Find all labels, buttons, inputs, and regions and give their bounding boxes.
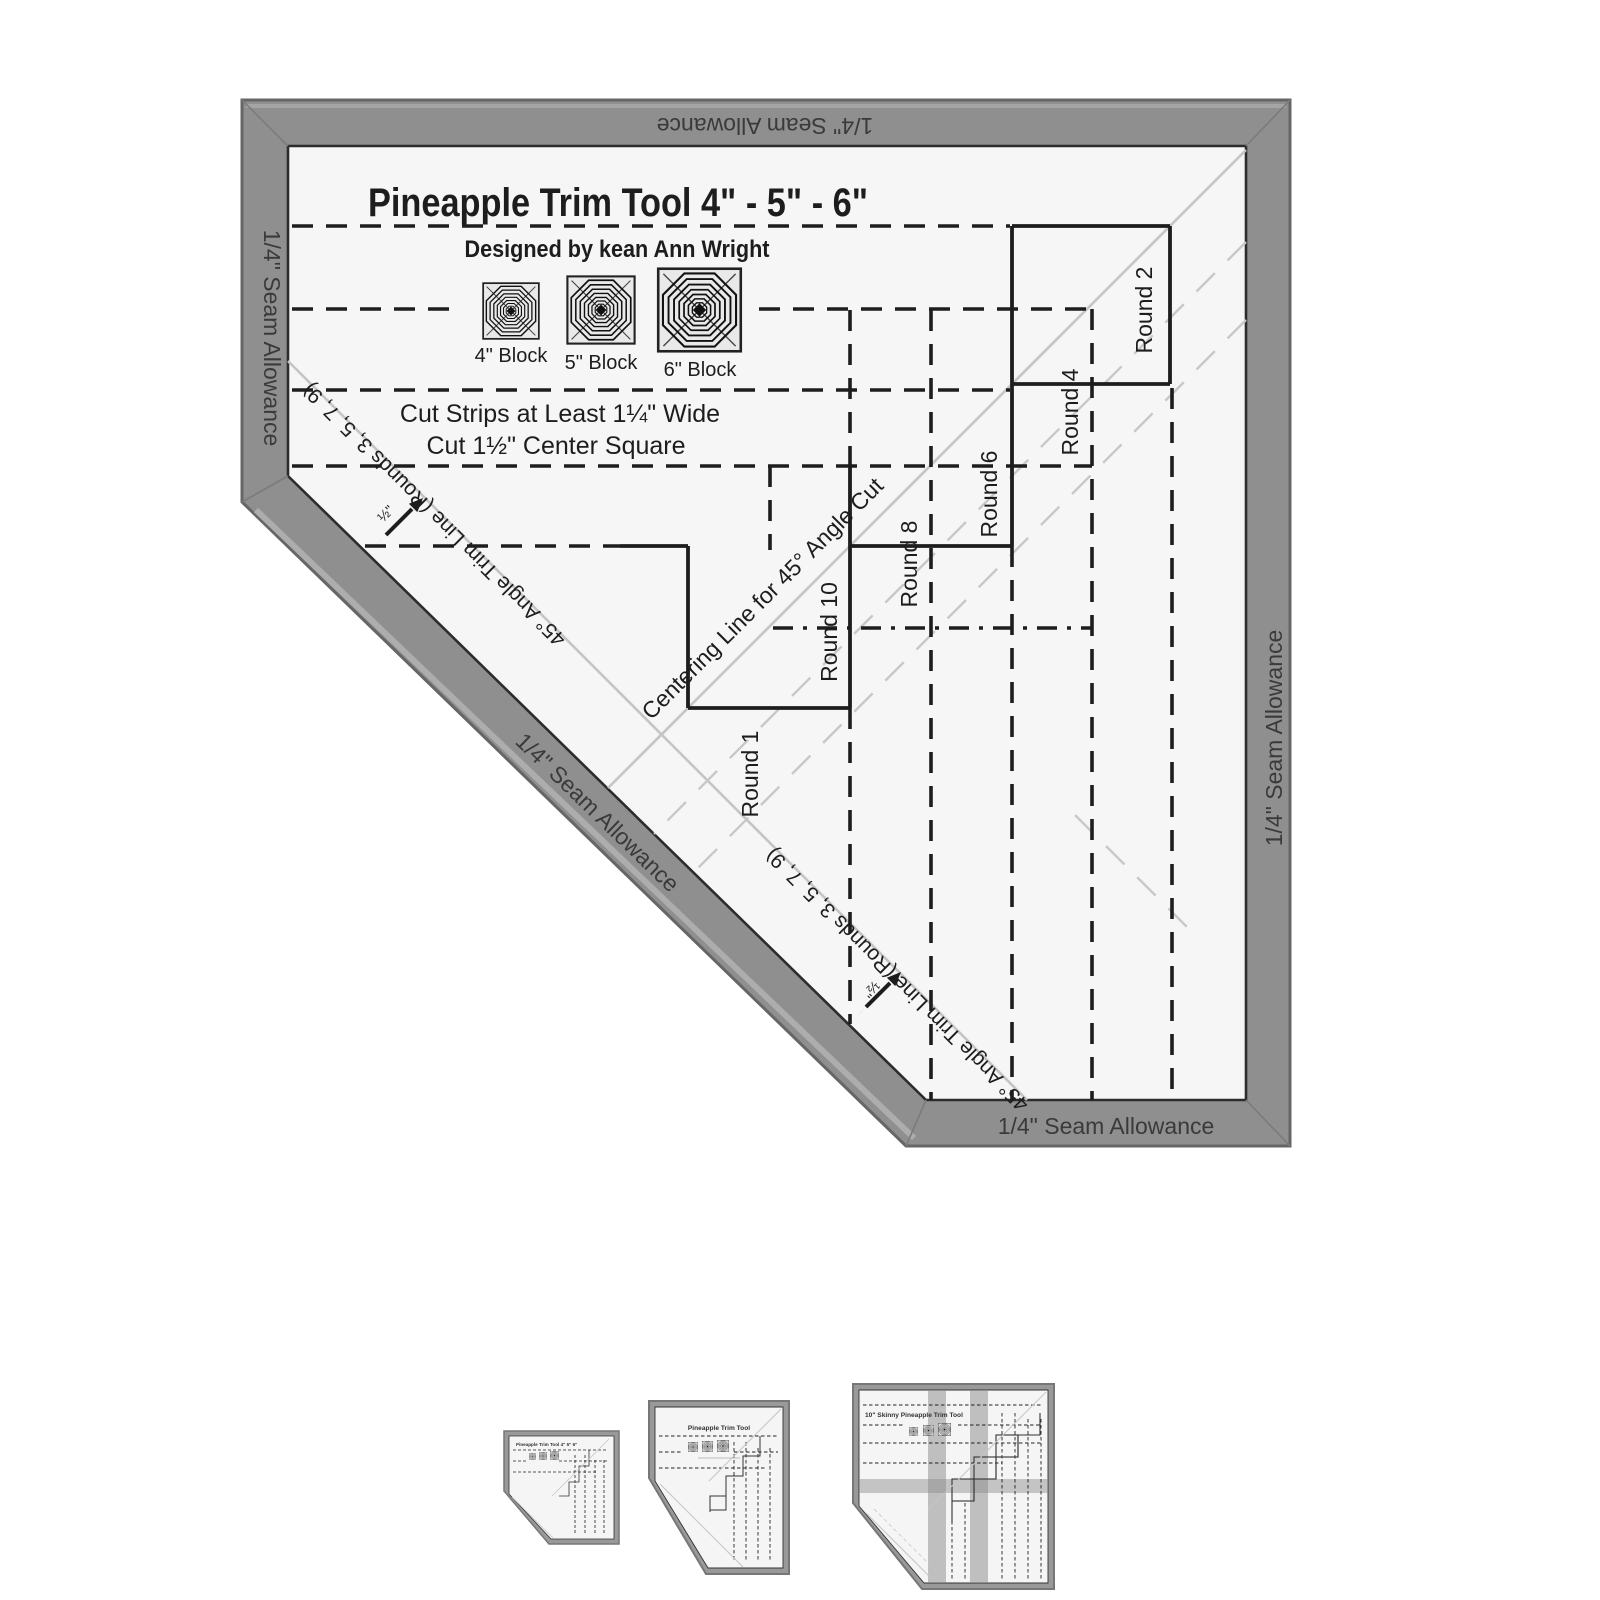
- main-product-image: 4" Block 5" Block 6" Block Pineapple Tri…: [240, 98, 1292, 1148]
- block-6in-icon: [658, 269, 741, 352]
- seam-label-bottom: 1/4" Seam Allowance: [998, 1113, 1215, 1139]
- instruction-line-1: Cut Strips at Least 1¼" Wide: [400, 400, 720, 428]
- seam-label-right: 1/4" Seam Allowance: [1261, 630, 1287, 847]
- block-4in-icon: [483, 283, 539, 339]
- thumbnail-ruler-large[interactable]: 10" Skinny Pineapple Trim Tool: [852, 1383, 1055, 1590]
- block-6in-label: 6" Block: [664, 359, 738, 381]
- thumbnail-2-title: Pineapple Trim Tool: [688, 1425, 750, 1432]
- round-6-label: Round 6: [976, 451, 1002, 538]
- thumbnail-1-title: Pineapple Trim Tool 4" 5" 6": [516, 1442, 577, 1447]
- block-diagrams: 4" Block 5" Block 6" Block: [475, 269, 741, 381]
- round-2-label: Round 2: [1131, 267, 1157, 354]
- product-image-stage: 4" Block 5" Block 6" Block Pineapple Tri…: [0, 0, 1600, 1600]
- seam-label-left: 1/4" Seam Allowance: [259, 230, 285, 447]
- block-5in-icon: [567, 276, 634, 343]
- round-1-label: Round 1: [737, 731, 763, 818]
- block-5in-label: 5" Block: [565, 352, 639, 374]
- round-10-label: Round 10: [816, 582, 842, 682]
- thumbnail-3-title: 10" Skinny Pineapple Trim Tool: [865, 1412, 963, 1419]
- round-4-label: Round 4: [1057, 368, 1083, 455]
- thumbnail-ruler-small[interactable]: Pineapple Trim Tool 4" 5" 6": [503, 1430, 620, 1545]
- block-4in-label: 4" Block: [475, 345, 549, 367]
- thumbnail-ruler-medium[interactable]: Pineapple Trim Tool: [648, 1400, 790, 1575]
- instruction-line-2: Cut 1½" Center Square: [426, 432, 685, 460]
- ruler-designer: Designed by kean Ann Wright: [465, 236, 770, 263]
- seam-label-top: 1/4" Seam Allowance: [657, 113, 874, 139]
- ruler-title: Pineapple Trim Tool 4" - 5" - 6": [368, 181, 868, 225]
- round-8-label: Round 8: [896, 521, 922, 608]
